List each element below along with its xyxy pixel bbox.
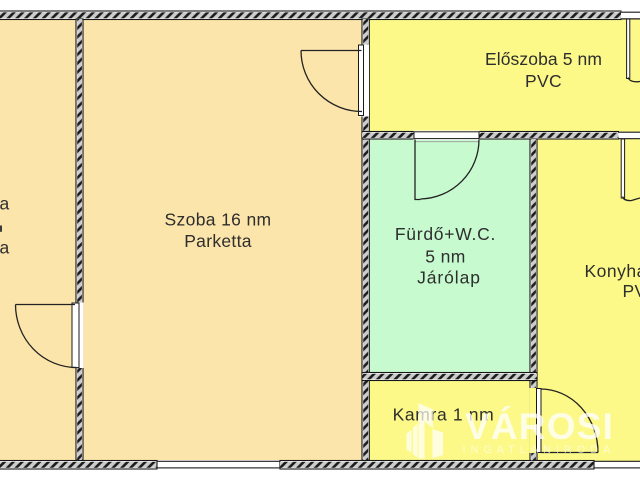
svg-text:Konyha 7 nm: Konyha 7 nm — [585, 261, 640, 281]
svg-text:Fürdő+W.C.: Fürdő+W.C. — [395, 224, 496, 244]
svg-text:Parketta: Parketta — [0, 238, 10, 258]
svg-text:Szoba: Szoba — [0, 194, 10, 214]
svg-text:PVC: PVC — [525, 71, 562, 91]
svg-text:Járólap: Járólap — [417, 268, 481, 288]
svg-text:Parketta: Parketta — [184, 231, 252, 251]
svg-text:5 nm: 5 nm — [425, 247, 466, 267]
svg-text:PVC: PVC — [623, 281, 640, 301]
svg-text:VÁROSI: VÁROSI — [465, 406, 614, 447]
svg-text:Előszoba 5 nm: Előszoba 5 nm — [485, 49, 602, 69]
svg-text:Szoba 16 nm: Szoba 16 nm — [165, 210, 272, 230]
svg-text:INGATLANIRODA: INGATLANIRODA — [463, 444, 616, 456]
